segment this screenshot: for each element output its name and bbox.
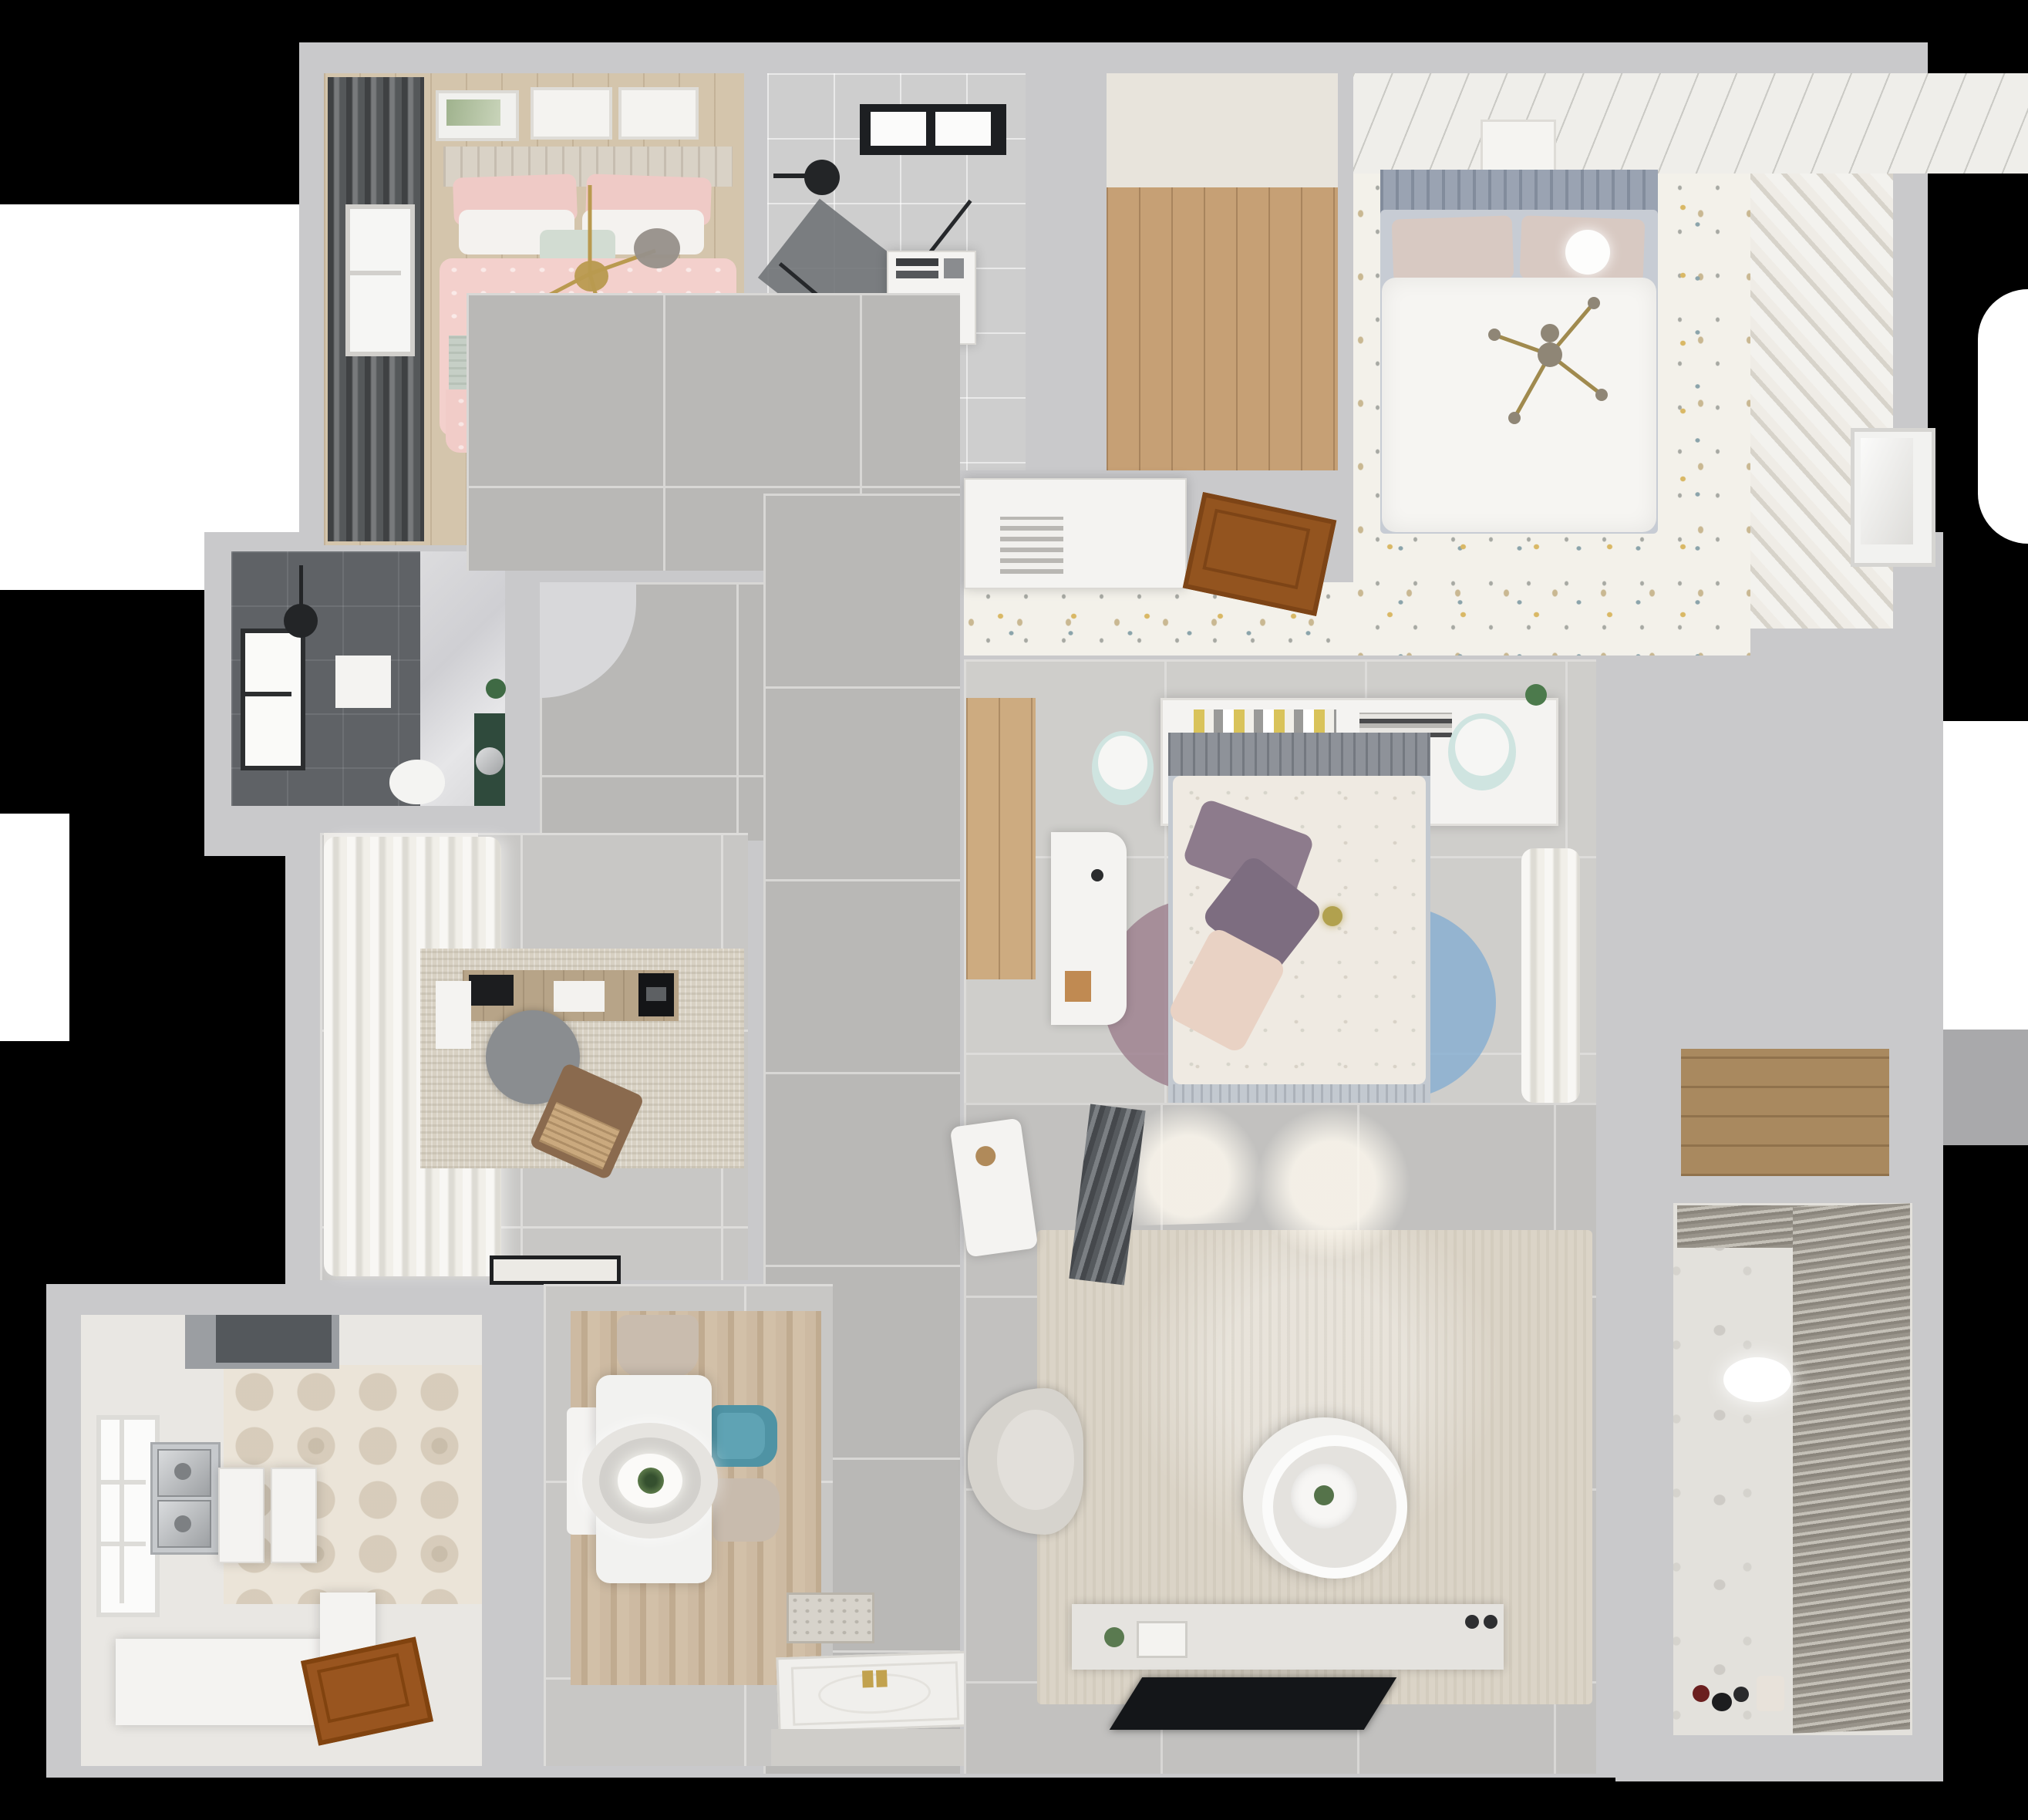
flat-tv (1110, 1677, 1396, 1730)
door-handle-gold (862, 1670, 874, 1687)
mask-patch-right-blob (1978, 289, 2028, 544)
lamp-stem (299, 565, 303, 608)
pouf-right (1448, 713, 1516, 790)
gold-cross-pendant (1473, 278, 1627, 432)
storage-niche (1681, 1049, 1889, 1176)
ceiling-lamp (284, 604, 318, 638)
vented-wardrobe (964, 478, 1187, 589)
headboard-gray (1168, 733, 1430, 776)
chair-teal (711, 1405, 777, 1467)
window (345, 204, 415, 356)
shower-mat (335, 656, 391, 708)
desk-paper (554, 981, 605, 1012)
console-frames (1137, 1621, 1187, 1658)
room-balcony (1650, 1030, 1916, 1735)
tv-console (1072, 1604, 1504, 1670)
plant-on-shelf (1525, 684, 1547, 706)
wood-entry-strip (966, 698, 1036, 979)
plant-centerpiece (638, 1468, 664, 1494)
toy-3 (1733, 1687, 1749, 1702)
wall-art-frame-3 (618, 87, 699, 140)
chair-beige-2 (713, 1478, 780, 1542)
bed-center (1168, 733, 1430, 1130)
counter-island-2 (271, 1468, 317, 1563)
floor-plan-render: { "scene": { "type": "3d-floor-plan-top-… (0, 0, 2028, 1820)
shower-arm (773, 174, 809, 178)
ceiling-planks (1353, 73, 2028, 174)
desk (463, 970, 679, 1021)
exterior-white-door (1851, 428, 1935, 567)
door-handle-gold-2 (876, 1670, 888, 1687)
room-kitchen (81, 1315, 482, 1766)
room-bedroom-center (964, 659, 1596, 1103)
gold-sprig (1322, 906, 1342, 926)
console-speaker (1465, 1615, 1479, 1629)
venetian-blinds (1793, 1203, 1910, 1733)
plant (486, 679, 506, 699)
table-plant (1314, 1485, 1334, 1505)
mask-patch-left-2 (0, 814, 69, 1041)
room-study (320, 833, 748, 1280)
toilet (389, 760, 445, 804)
ball-lamp (1565, 230, 1610, 275)
toy-1 (1693, 1685, 1710, 1702)
ring-pendant-lamp (582, 1423, 718, 1539)
console-speaker-2 (1484, 1615, 1497, 1629)
entry-zone (771, 1581, 972, 1774)
chair-beige-top (617, 1315, 699, 1377)
window (241, 629, 305, 770)
coffee-table (1243, 1417, 1405, 1576)
white-desk (1051, 832, 1127, 1025)
toy-basket (1757, 1676, 1784, 1711)
green-vanity (474, 713, 505, 806)
art-frame (1481, 120, 1556, 172)
front-door (776, 1651, 972, 1734)
counter-island-1 (218, 1468, 264, 1563)
wall-art-green (436, 90, 519, 141)
headboard-blue-gray (1380, 170, 1658, 214)
vent-grille (1000, 517, 1063, 574)
range-hood (216, 1315, 332, 1363)
room-shower (231, 551, 505, 806)
pillow-left (1392, 215, 1514, 282)
wall-art-frame-2 (531, 87, 612, 140)
black-doormat (490, 1255, 621, 1285)
monitor (638, 973, 674, 1016)
console-plant (1104, 1627, 1124, 1647)
double-sink (150, 1442, 221, 1555)
room-living (964, 1103, 1596, 1774)
patterned-doormat (787, 1592, 874, 1643)
vanity-sink (476, 747, 504, 775)
pouf-left (1092, 731, 1154, 805)
curtain-closet-right (1521, 848, 1580, 1103)
room-hallway (540, 582, 794, 841)
l-counter-bottom (116, 1639, 324, 1725)
threshold (771, 1729, 972, 1766)
side-unit (436, 981, 471, 1049)
toy-2 (1712, 1693, 1732, 1711)
shower-head-icon (804, 160, 840, 195)
oval-ceiling-light (1723, 1357, 1791, 1402)
desk-art-black (469, 975, 514, 1006)
room-bedroom-master (964, 73, 1893, 659)
